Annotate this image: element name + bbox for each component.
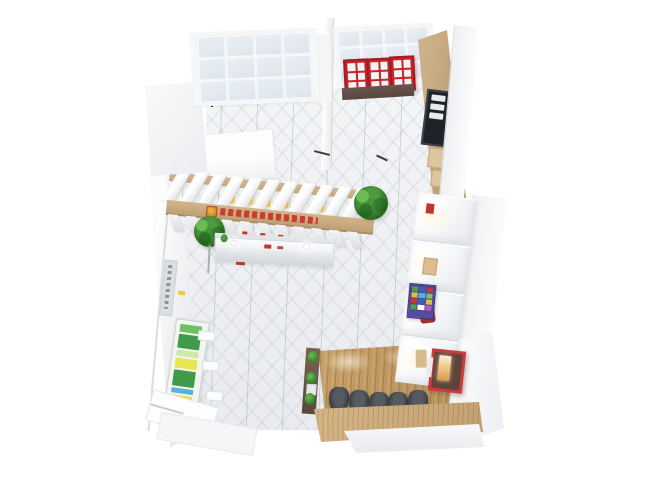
poster-square xyxy=(425,305,432,311)
wall-ledge xyxy=(198,330,216,342)
case-shelf-item xyxy=(357,72,365,80)
window-pane xyxy=(384,29,404,44)
window-pane xyxy=(228,58,254,78)
window-pane xyxy=(255,35,281,55)
case-shelf-item xyxy=(403,60,411,68)
counter-red-product xyxy=(277,246,283,249)
window-pane xyxy=(285,78,311,98)
poster-square xyxy=(411,292,418,298)
window-pane xyxy=(284,56,310,76)
poster-square xyxy=(425,299,432,305)
poster-square xyxy=(411,298,418,304)
menu-board-lines xyxy=(426,94,446,141)
window-pane-grid xyxy=(199,34,312,102)
window-pane xyxy=(201,81,227,101)
poster-block xyxy=(174,357,197,370)
case-shelf-item xyxy=(393,60,401,68)
niche-item-tan-boot xyxy=(416,350,427,368)
purple-product-poster xyxy=(407,283,437,320)
wall-ledge xyxy=(206,390,224,402)
case-shelf-item xyxy=(370,62,378,70)
floor-red-item xyxy=(236,262,245,265)
menu-line xyxy=(429,112,444,120)
niche-item-red-tag xyxy=(425,203,434,214)
case-shelf-item xyxy=(371,72,379,80)
case-shelf-item xyxy=(380,62,388,70)
menu-line xyxy=(431,94,446,102)
yellow-price-tag xyxy=(178,291,185,296)
sign-text-dashes xyxy=(164,265,173,309)
poster-square xyxy=(426,293,433,299)
planter-plant xyxy=(304,393,315,406)
poster-square xyxy=(419,287,426,293)
window-pane xyxy=(362,30,382,45)
case-shelf-item xyxy=(357,63,365,71)
case-shelf-item xyxy=(348,73,356,81)
window-pane xyxy=(199,37,225,57)
case-shelf-item xyxy=(403,69,411,77)
window-pane xyxy=(283,34,309,54)
display-niche xyxy=(412,192,475,246)
poster-square xyxy=(410,304,417,310)
poster-square-grid xyxy=(410,286,433,311)
poster-square xyxy=(426,287,433,293)
window-pane xyxy=(256,57,282,77)
potted-plant xyxy=(354,186,388,220)
display-counter xyxy=(213,233,339,271)
window-pane xyxy=(257,79,283,99)
case-shelf-item xyxy=(347,63,355,71)
planter-plant xyxy=(307,351,318,364)
grid-window-left xyxy=(190,27,319,106)
machine-lit-window xyxy=(437,355,452,381)
poster-square xyxy=(412,286,419,292)
poster-block xyxy=(172,369,196,388)
niche-item-tan-box xyxy=(422,257,438,276)
wall-ledge xyxy=(202,360,220,372)
window-pane xyxy=(339,31,359,46)
render-canvas xyxy=(0,0,650,488)
poster-square xyxy=(419,293,426,299)
window-pane xyxy=(229,80,255,100)
window-pane xyxy=(200,59,226,79)
red-vending-machine xyxy=(428,348,466,393)
planter-plant xyxy=(306,372,317,385)
window-pane xyxy=(227,36,253,56)
poster-square xyxy=(418,299,425,305)
counter-red-product xyxy=(264,244,271,248)
menu-line xyxy=(430,103,445,111)
case-shelf-item xyxy=(380,71,388,79)
case-shelf-item xyxy=(394,70,402,78)
poster-square xyxy=(418,305,425,311)
